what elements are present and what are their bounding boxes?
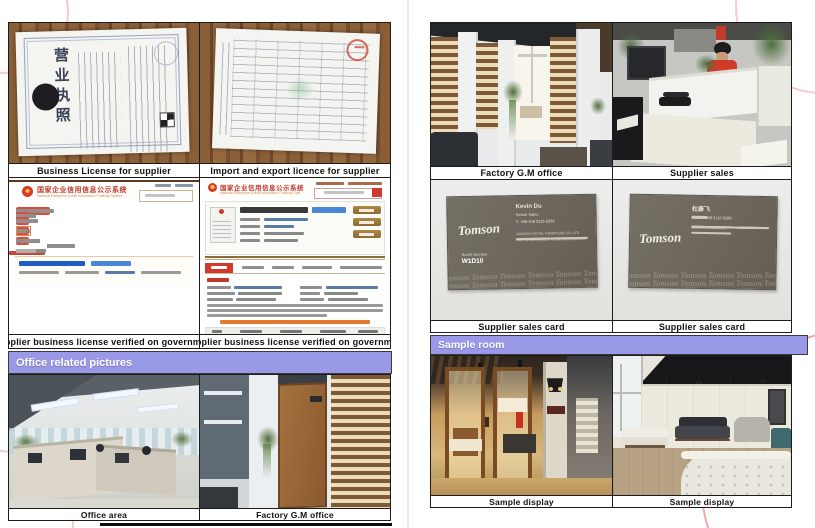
breadcrumb: [348, 182, 382, 185]
red-poster: [716, 26, 726, 40]
spotlight: [518, 360, 522, 367]
report-button: [353, 206, 381, 214]
vine: [509, 100, 516, 140]
caption: Supplier sales card: [430, 320, 613, 333]
company-name-link: [19, 261, 85, 266]
result-meta: [141, 271, 181, 274]
sofa-roll: [681, 451, 791, 459]
factory-gm-office-photo: [199, 374, 391, 509]
caption: Business License for supplier: [8, 163, 200, 178]
document-spread: 营业执照 Business Lice: [0, 0, 815, 528]
top-strip: [9, 180, 199, 182]
caption: Supplier sales: [612, 166, 792, 180]
brick-column: [576, 398, 598, 454]
window-frame: [620, 364, 622, 431]
business-card: Tomson Booth Number W1D10 Kevin Du Senio…: [446, 194, 598, 291]
notice-text: [220, 320, 370, 324]
gov-emblem-icon: [208, 183, 217, 192]
office-area-photo: [8, 374, 200, 509]
mattress: [622, 428, 668, 436]
lamp-glow: [549, 387, 553, 391]
telephone-handset: [663, 92, 689, 97]
breadcrumb: [316, 182, 344, 185]
text-lines: [78, 52, 122, 149]
vertical-title: [219, 42, 229, 134]
telephone: [659, 97, 691, 106]
window: [613, 356, 643, 437]
caption: Supplier business license verified on go…: [199, 334, 391, 349]
right-page: Factory G.M office Supplier sales Tomson…: [430, 22, 793, 508]
booth-number: Booth Number W1D10: [462, 252, 488, 265]
dark-sofa: [675, 426, 730, 440]
gov-emblem-icon: [22, 186, 33, 197]
spotlight-stem: [763, 373, 764, 380]
monitor: [70, 449, 86, 460]
white-desk: [631, 113, 756, 167]
interior-sofa: [498, 398, 527, 412]
caption: Sample display: [430, 495, 613, 508]
sign-plate: [547, 406, 565, 414]
gov-site-subtitle: National Enterprise Credit Information P…: [220, 191, 300, 195]
caption: Sample display: [612, 495, 792, 508]
glass-door: [493, 367, 533, 492]
caption: Supplier business license verified on go…: [8, 334, 200, 349]
tufted-sofa: [681, 453, 791, 495]
page-shadow: [100, 523, 392, 526]
page-divider: [407, 0, 409, 528]
red-stamp-text: [355, 46, 365, 48]
search-placeholder: [145, 194, 175, 197]
chair: [590, 140, 612, 166]
mattress: [622, 437, 668, 445]
plant: [752, 23, 791, 66]
print-button: [353, 218, 381, 226]
business-card: Tomson 杜康飞 M: +86 158 0116 6289 www.toms…: [628, 194, 778, 291]
section-heading: [207, 278, 229, 282]
ceiling-light: [137, 403, 179, 413]
header-link: [175, 184, 193, 187]
spotlight-stem: [730, 377, 731, 384]
search-text: [324, 191, 364, 194]
cabinet: [674, 29, 717, 52]
factory-gm-office-photo: [430, 22, 613, 167]
brand-logo: Tomson: [639, 230, 682, 247]
left-page: 营业执照 Business Lice: [8, 22, 392, 521]
wall-art: [768, 389, 786, 425]
caption: Factory G.M office: [199, 508, 391, 521]
status-tag: [91, 261, 131, 266]
sample-display-photo: [612, 355, 792, 496]
black-ceiling: [638, 356, 791, 387]
header-link: [155, 184, 171, 187]
brand-logo: Tomson: [458, 221, 501, 240]
floor: [431, 478, 612, 495]
monitor: [115, 453, 129, 463]
gold-rule: [205, 259, 385, 260]
result-item: [15, 256, 193, 283]
monitor: [28, 453, 42, 463]
glass-mullion: [204, 391, 242, 395]
share-button: [353, 230, 381, 238]
business-license-photo: 营业执照: [8, 22, 200, 164]
search-button: [372, 188, 382, 197]
door-handle: [485, 417, 489, 427]
gov-site-header: 国家企业信用信息公示系统 National Enterprise Credit …: [9, 178, 199, 205]
section-banner-office: Office related pictures: [8, 351, 392, 374]
chesterfield-chair: [734, 417, 770, 442]
result-meta: [105, 271, 135, 274]
desk-inside: [520, 106, 542, 118]
vine: [263, 444, 271, 478]
dark-furniture: [200, 487, 238, 508]
card-details: 杜康飞 M: +86 158 0116 6289 www.tomsonsofa.…: [692, 205, 774, 232]
thumb-lines: [213, 218, 231, 238]
license-paper: 营业执照: [15, 28, 189, 156]
green-smudge: [286, 76, 315, 101]
gold-rule: [205, 256, 385, 258]
section-banner-sample-room: Sample room: [430, 335, 808, 355]
licence-paper: [212, 28, 380, 154]
interior-sofa: [449, 439, 482, 450]
zebra-blinds: [476, 43, 498, 129]
red-figure: [516, 412, 523, 428]
plant: [171, 431, 193, 447]
desk: [540, 147, 587, 166]
white-partition-side: [757, 66, 791, 126]
gov-site-subtitle: National Enterprise Credit Information P…: [37, 194, 129, 198]
supplier-sales-photo: [612, 22, 792, 167]
cubicle-panel: [96, 444, 176, 495]
zebra-blinds: [550, 37, 575, 143]
plant: [590, 97, 606, 115]
floor: [9, 499, 199, 508]
filter-panel: [9, 211, 199, 251]
business-card-photo-en: Tomson Booth Number W1D10 Kevin Du Senio…: [430, 179, 613, 321]
filter-row: [9, 226, 199, 236]
caption: Office area: [8, 508, 200, 521]
zebra-blinds: [327, 375, 391, 508]
tab-underline: [205, 273, 385, 274]
business-card-photo-cn: Tomson 杜康飞 M: +86 158 0116 6289 www.toms…: [612, 179, 792, 321]
caption: Import and export licence for supplier: [199, 163, 391, 178]
qr-code: [161, 113, 174, 126]
import-export-licence-photo: [199, 22, 391, 164]
text-line: [691, 233, 731, 236]
lamp-glow: [558, 387, 562, 391]
window-frame: [613, 392, 641, 394]
brand-watermark: Tomson Tomson Tomson Tomson Tomson Tomso…: [628, 280, 778, 289]
company-name: [240, 207, 308, 213]
sofa-trim: [675, 439, 730, 441]
result-meta: [65, 271, 99, 274]
result-meta: [19, 271, 59, 274]
gov-website-home-screenshot: 国家企业信用信息公示系统 National Enterprise Credit …: [8, 177, 200, 335]
sample-display-photo: [430, 355, 613, 496]
card-details: Kevin Du Senior Sales T: +86-158 0116 62…: [516, 203, 594, 242]
spotlight-stem: [698, 374, 699, 381]
caption: Factory G.M office: [430, 166, 613, 180]
dark-counter: [503, 434, 536, 453]
thumb-emblem: [219, 209, 224, 214]
person-head: [142, 446, 151, 455]
window-bar: [531, 46, 533, 103]
status-tag: [312, 207, 346, 213]
gov-website-detail-screenshot: 国家企业信用信息公示系统 National Enterprise Credit …: [199, 177, 391, 335]
caption: Supplier sales card: [612, 320, 792, 333]
spotlight: [759, 380, 766, 383]
door-sign: [310, 396, 322, 402]
dark-sofa: [431, 132, 478, 166]
monitor: [627, 46, 666, 80]
glass-mullion: [204, 420, 242, 424]
